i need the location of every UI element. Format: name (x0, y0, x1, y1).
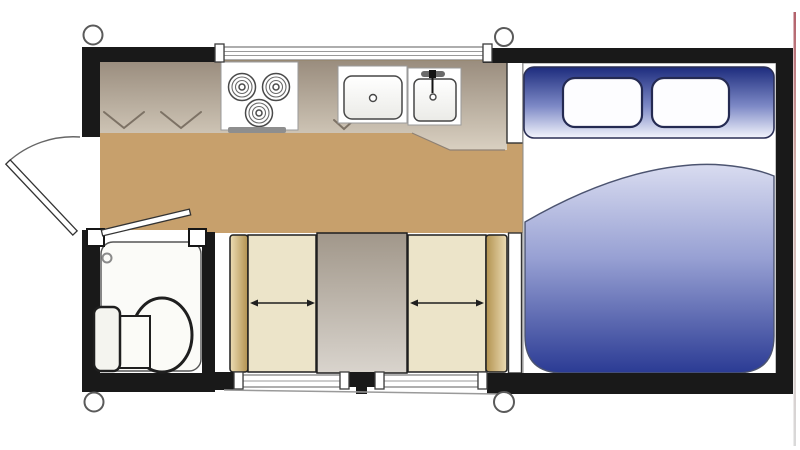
wall-top-right (483, 48, 793, 63)
bench-back-right (486, 235, 507, 372)
wall-top-left (82, 47, 224, 62)
bar-sink-drain (430, 94, 436, 100)
burner (263, 74, 290, 101)
jack-front-right (495, 28, 513, 46)
floorplan-canvas (0, 0, 800, 450)
rear-window-left (234, 372, 349, 389)
front-window (215, 44, 492, 62)
wall-bottom-segment (213, 372, 236, 390)
rear-window-right (375, 372, 487, 389)
burner (246, 100, 273, 127)
toilet-tank (94, 307, 120, 371)
pillow-left (563, 78, 642, 127)
bedroom (523, 63, 776, 375)
wall-bottom-right (487, 373, 793, 394)
image-edge-artifact (794, 12, 797, 446)
pillow-right (652, 78, 729, 127)
faucet-base (429, 70, 436, 78)
bar-sink (408, 68, 461, 125)
jack-front-left (84, 26, 103, 45)
dinette (215, 233, 507, 373)
camper-floorplan (0, 0, 800, 450)
cooktop (221, 62, 298, 133)
headboard-shelf (524, 67, 774, 138)
burner (229, 74, 256, 101)
dinette-alcove-gap (215, 233, 230, 373)
wall-bottom-bathroom (82, 371, 215, 392)
oven-handle (228, 127, 286, 133)
toilet (94, 298, 192, 372)
kitchen-sink (338, 66, 407, 123)
dinette-table (317, 233, 407, 373)
wall-left-upper (82, 47, 100, 137)
bench-back-left (230, 235, 248, 372)
wall-bathroom-right (202, 232, 215, 392)
toilet-seat-joint (118, 316, 150, 368)
partition-lower (509, 233, 522, 373)
bathroom (87, 209, 206, 373)
jack-rear-right (494, 392, 514, 412)
partition-upper (507, 62, 523, 143)
wall-right (776, 48, 793, 394)
jack-rear-left (85, 393, 104, 412)
sink-drain (370, 95, 377, 102)
door-post-right (189, 229, 206, 246)
